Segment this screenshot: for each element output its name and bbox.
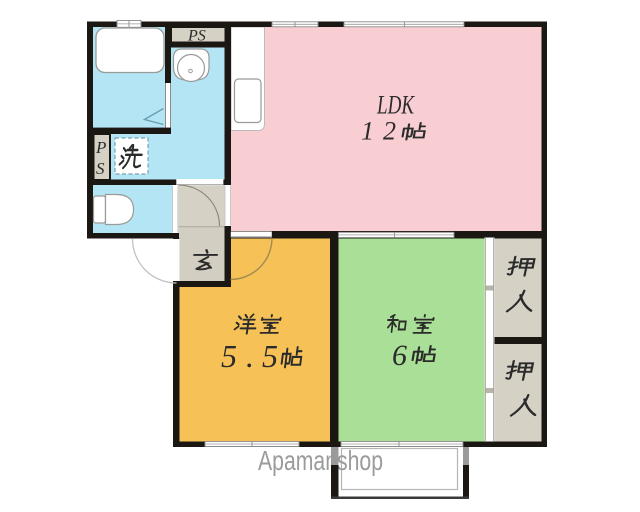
svg-text:S: S — [96, 159, 105, 178]
svg-text:Apamanshop: Apamanshop — [258, 445, 383, 476]
svg-text:2: 2 — [383, 117, 396, 146]
svg-text:PS: PS — [187, 28, 206, 45]
svg-text:.: . — [246, 338, 254, 374]
svg-text:P: P — [95, 138, 106, 157]
svg-text:5: 5 — [221, 338, 237, 374]
svg-text:LDK: LDK — [376, 91, 415, 120]
svg-text:5: 5 — [262, 338, 278, 374]
svg-text:6: 6 — [392, 339, 407, 372]
svg-text:1: 1 — [361, 117, 374, 146]
